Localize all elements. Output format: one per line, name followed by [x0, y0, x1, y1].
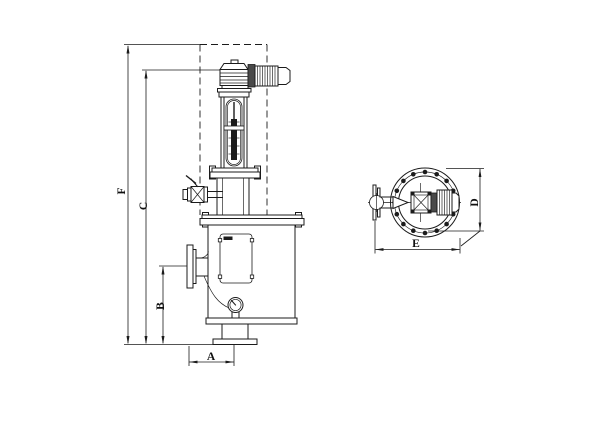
gearbox-top: [220, 64, 248, 70]
inlet-flange: [187, 245, 193, 288]
top-view: D E: [368, 168, 484, 254]
coupling-top-view: [431, 193, 437, 212]
panel-handle: [224, 237, 233, 241]
front-view: F C B A: [116, 45, 304, 367]
access-panel: [218, 234, 253, 283]
motor-coupling: [248, 65, 255, 88]
motor-end-cap: [278, 68, 290, 85]
column-neck: [217, 178, 249, 216]
dim-label-e: E: [412, 238, 420, 250]
outlet-pedestal: [222, 324, 248, 339]
motor-cap-top-view: [452, 193, 459, 212]
base-flange: [213, 339, 257, 345]
nozzle-cone: [393, 197, 408, 209]
dimension-a: A: [189, 345, 234, 366]
dim-label-f: F: [116, 187, 128, 194]
gearbox-knob: [231, 60, 238, 64]
screw-crossbar: [224, 126, 244, 130]
gear-motor: [220, 60, 290, 87]
dim-label-d: D: [469, 198, 481, 206]
motor-body: [255, 66, 278, 86]
inlet-nozzle: [187, 245, 209, 288]
engineering-drawing: F C B A: [0, 0, 605, 428]
screw-column: [221, 97, 247, 168]
dim-label-b: B: [155, 302, 167, 310]
gear-motor-top: [411, 190, 459, 215]
dim-label-a: A: [207, 351, 216, 363]
valve-handle: [186, 176, 196, 184]
drawing-canvas: F C B A: [0, 0, 605, 428]
dim-label-c: C: [138, 202, 150, 210]
adapter-flange: [218, 86, 252, 98]
dimension-b: B: [155, 266, 188, 345]
column-flange: [210, 166, 261, 179]
vessel-base: [206, 318, 297, 345]
